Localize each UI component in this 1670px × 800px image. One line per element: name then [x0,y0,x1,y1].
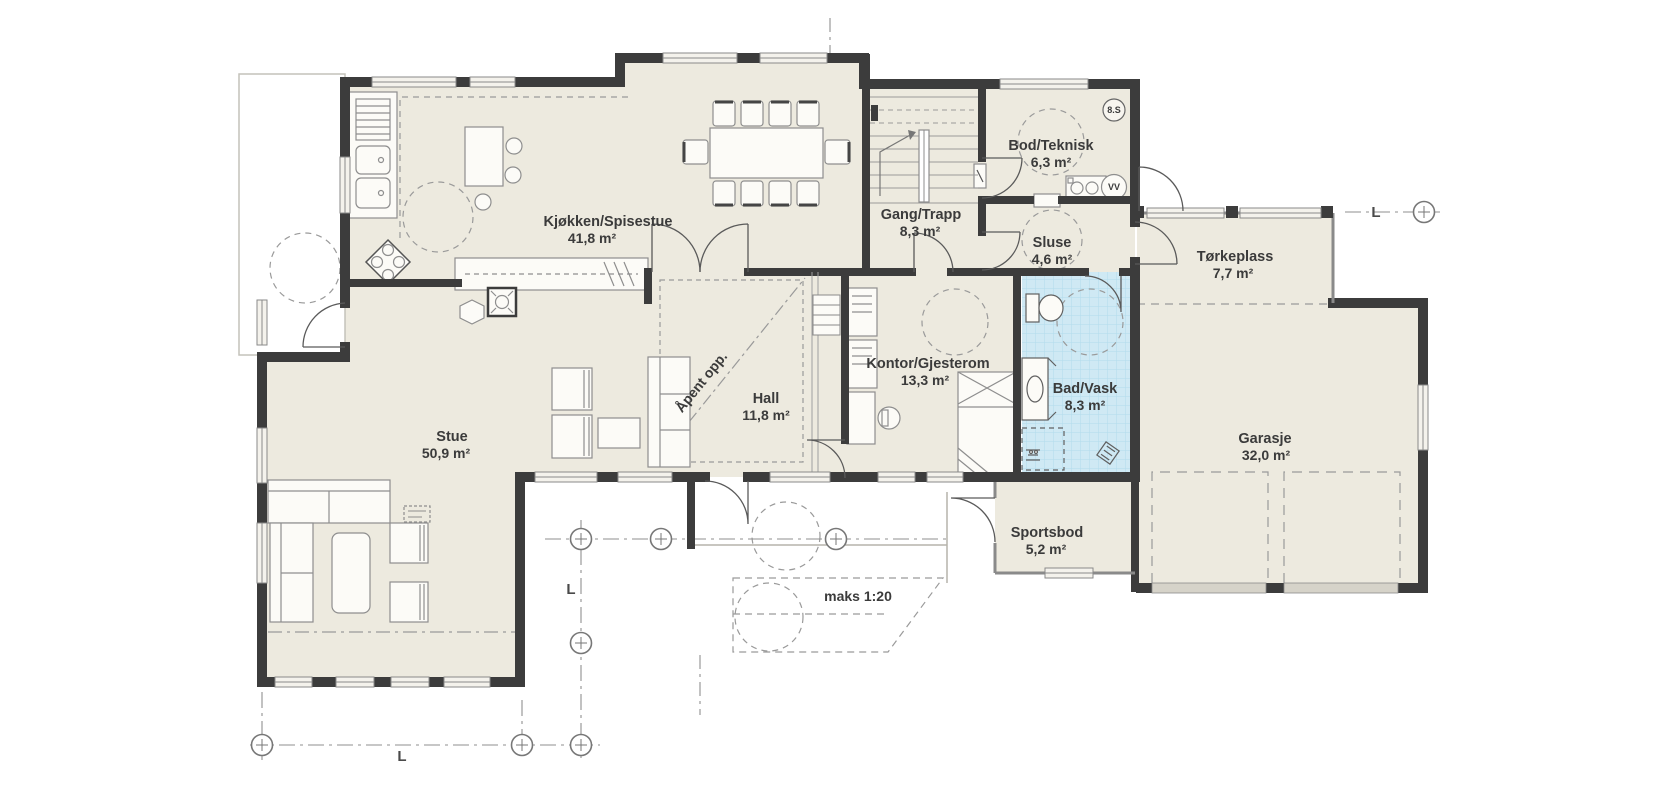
room-area-torkeplass: 7,7 m² [1213,265,1254,281]
grid-label-mid: L [566,581,575,598]
turning-circle-ramp [735,583,803,651]
room-label-bod: Bod/Teknisk [1008,138,1094,154]
room-area-garasje: 32,0 m² [1242,447,1291,463]
ramp-slope-label: maks 1:20 [824,588,892,604]
stair-post [871,105,878,121]
grid-label-right: L [1371,204,1380,221]
coffee-table [332,533,370,613]
fireplace-icon [488,288,516,316]
room-label-sportsbod: Sportsbod [1011,525,1084,541]
room-area-kontor: 13,3 m² [901,372,950,388]
door-sportsbod [951,498,995,542]
desk-chair [878,407,900,429]
room-label-sluse: Sluse [1033,235,1072,251]
room-label-torkeplass: Tørkeplass [1197,249,1274,265]
room-label-kjokken: Kjøkken/Spisestue [544,214,673,230]
room-area-sportsbod: 5,2 m² [1026,541,1067,557]
room-label-stue: Stue [436,429,467,445]
room-label-kontor: Kontor/Gjesterom [866,356,989,372]
toilet-icon [1026,294,1063,322]
kitchen-lower-counter [455,258,648,290]
hall-shelf [813,295,840,335]
porch-edge [691,492,947,583]
floor-plan-svg: Kjøkken/Spisestue 41,8 m² Gang/Trapp 8,3… [0,0,1670,800]
terrace-west-outline [239,74,345,355]
room-label-bad: Bad/Vask [1053,381,1118,397]
door-kitchen-terrace [303,303,345,347]
kitchen-sink-counter [349,92,397,218]
water-heater-label: VV [1108,182,1120,192]
turning-circle-porch [752,502,820,570]
stool-hexagon [460,300,484,324]
bed [958,372,1016,477]
turning-circle-terrace [270,233,340,303]
section-badge-label: 8.S [1107,105,1121,115]
threshold-step [1034,194,1060,207]
door-torkeplass-entry [1139,167,1183,211]
room-area-kjokken: 41,8 m² [568,230,617,246]
room-area-gang: 8,3 m² [900,223,941,239]
room-area-bad: 8,3 m² [1065,397,1106,413]
room-area-stue: 50,9 m² [422,445,471,461]
desk [847,392,875,444]
floor-plan-page: Kjøkken/Spisestue 41,8 m² Gang/Trapp 8,3… [0,0,1670,800]
room-area-sluse: 4,6 m² [1032,251,1073,267]
room-label-hall: Hall [753,391,780,407]
room-label-gang: Gang/Trapp [881,207,962,223]
grid-label-bottom: L [397,748,406,765]
room-label-garasje: Garasje [1238,431,1291,447]
room-area-hall: 11,8 m² [742,407,790,423]
room-area-bod: 6,3 m² [1031,154,1072,170]
door-main-entry [705,481,748,524]
